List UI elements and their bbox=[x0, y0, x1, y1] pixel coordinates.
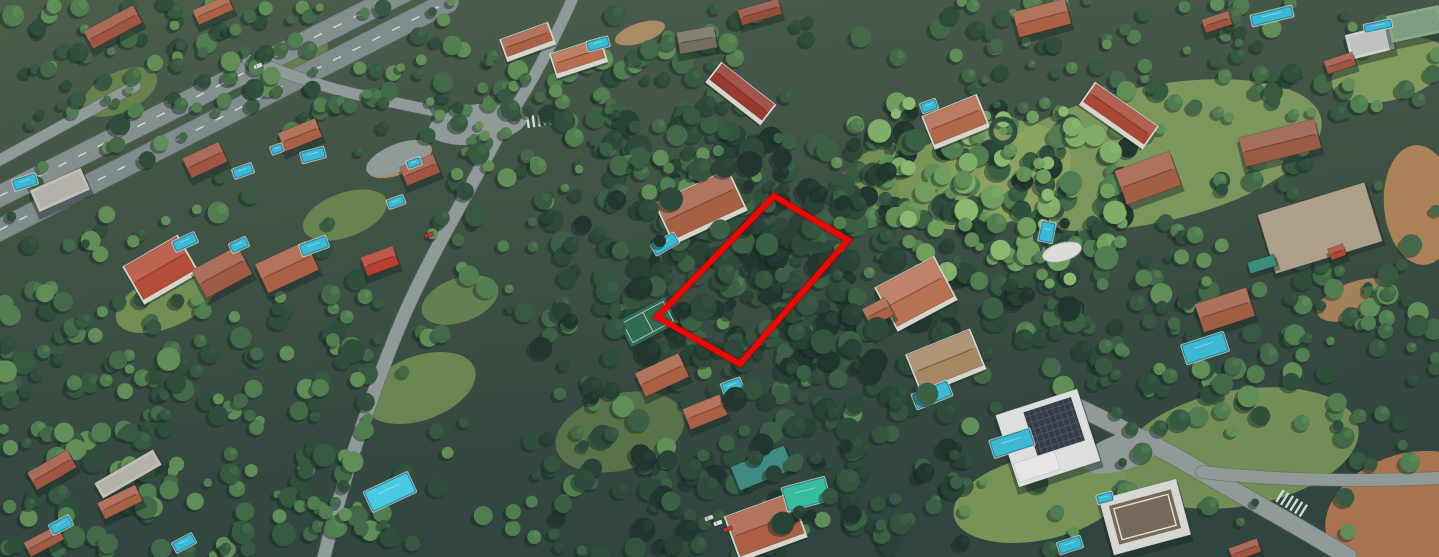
aerial-imagery: Oblique aerial satellite view of a woode… bbox=[0, 0, 1439, 557]
aerial-map-canvas[interactable]: Oblique aerial satellite view of a woode… bbox=[0, 0, 1439, 557]
atmospheric-haze-layer bbox=[0, 0, 1439, 557]
